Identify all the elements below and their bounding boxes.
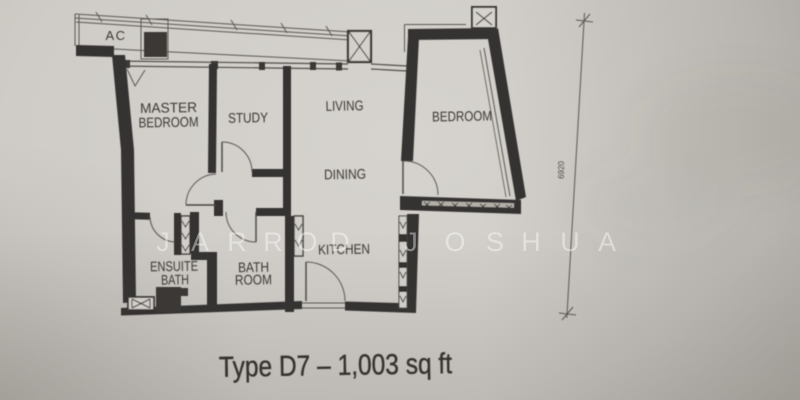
- svg-text:STUDY: STUDY: [228, 109, 269, 126]
- svg-text:Type D7 – 1,003 sq ft: Type D7 – 1,003 sq ft: [219, 348, 452, 384]
- svg-text:O: O: [444, 227, 465, 257]
- svg-text:A: A: [598, 227, 616, 257]
- svg-text:O: O: [296, 227, 317, 257]
- svg-text:S: S: [486, 227, 504, 257]
- svg-text:H: H: [521, 227, 541, 257]
- svg-text:A: A: [191, 227, 209, 257]
- svg-text:AC: AC: [105, 28, 126, 43]
- svg-text:LIVING: LIVING: [325, 97, 363, 114]
- svg-text:6920: 6920: [557, 161, 566, 179]
- svg-text:J: J: [156, 227, 170, 257]
- svg-text:BEDROOM: BEDROOM: [432, 107, 492, 124]
- svg-text:J: J: [404, 227, 418, 257]
- svg-text:ROOM: ROOM: [235, 271, 272, 288]
- svg-text:R: R: [227, 227, 247, 257]
- svg-text:U: U: [560, 227, 580, 257]
- svg-text:BEDROOM: BEDROOM: [138, 113, 198, 130]
- svg-text:DINING: DINING: [324, 166, 366, 183]
- svg-text:D: D: [330, 227, 350, 257]
- svg-text:BATH: BATH: [161, 271, 189, 287]
- svg-text:R: R: [263, 227, 283, 257]
